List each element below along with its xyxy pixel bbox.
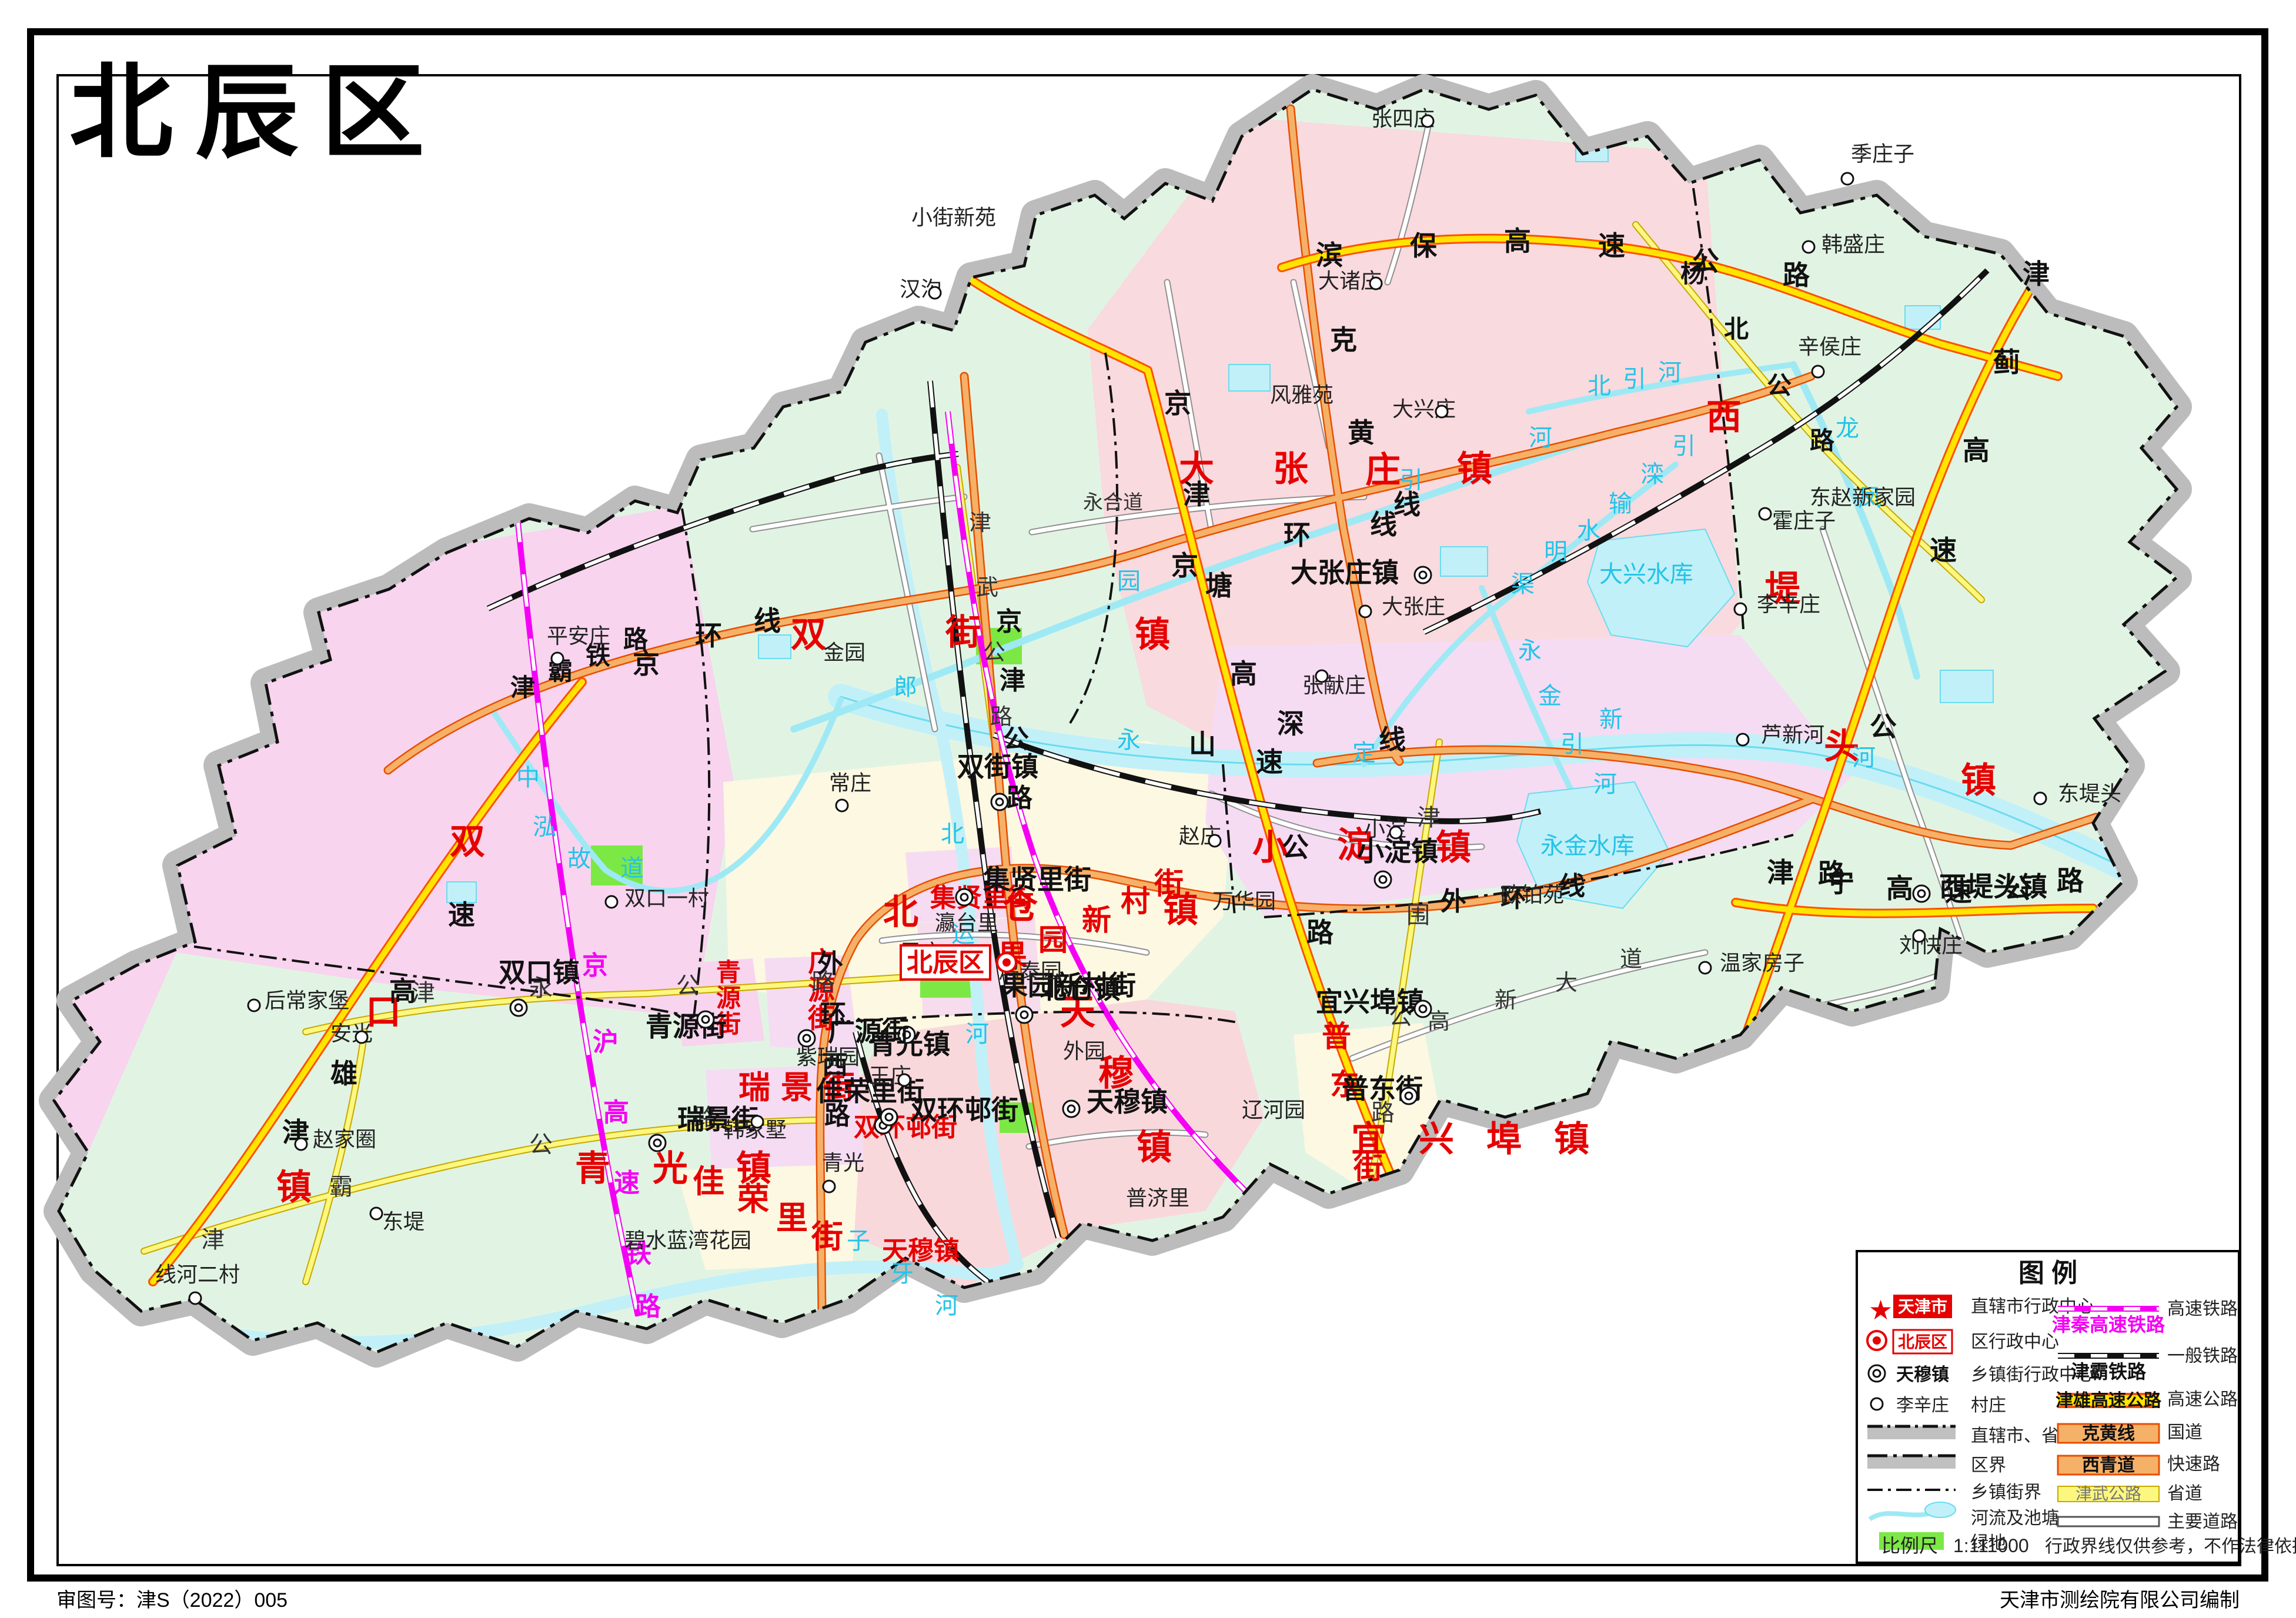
village-label-小街新苑: 小街新苑 <box>911 205 996 229</box>
legend-sample-津雄高速公路: 津雄高速公路 <box>2056 1391 2162 1410</box>
red-label-瑞景街: 景 <box>781 1070 813 1105</box>
legend-item-provincial-road: 津武公路省道 <box>2058 1484 2203 1503</box>
water-label-引滦输水明渠: 滦 <box>1640 462 1664 487</box>
map-title: 北辰区 <box>69 28 447 178</box>
village-label-平安庄: 平安庄 <box>547 624 610 648</box>
red-label-西堤头镇: 镇 <box>1961 761 1996 800</box>
road-label-津围公路: 津 <box>1417 805 1441 831</box>
town-center-icon-西堤头镇 <box>1913 885 1930 902</box>
town-center-icon-集贤里街 <box>956 889 972 905</box>
road-label-杨北公路: 杨 <box>1680 260 1705 288</box>
legend-title: 图 例 <box>2018 1259 2077 1288</box>
town-label-大张庄镇: 大张庄镇 <box>1291 557 1399 588</box>
water-label-永金引河: 引 <box>1560 731 1584 757</box>
town-center-icon-legend <box>1869 1365 1885 1382</box>
red-label-大张庄镇: 张 <box>1273 449 1308 489</box>
red-label-宜兴埠镇: 埠 <box>1486 1119 1522 1159</box>
water-label-永定新河: 永 <box>1117 727 1141 753</box>
village-icon-平安庄 <box>552 653 563 664</box>
district-center-icon <box>1867 1331 1886 1350</box>
town-center-icon-北仓镇 <box>1016 1007 1032 1023</box>
road-label-杨北公路: 北 <box>1724 315 1749 343</box>
water-label-永金引河: 金 <box>1538 683 1562 709</box>
water-label-郎园引河: 河 <box>1529 425 1552 451</box>
village-icon-张献庄 <box>1316 670 1328 682</box>
hsr-label-京沪高速铁路: 高 <box>603 1098 629 1127</box>
map-page: 大张庄镇双街镇北仓镇天穆镇天穆镇西堤头镇双口镇青光镇小淀镇宜兴埠镇果园新村街集贤… <box>0 0 2296 1618</box>
legend-sample-天穆镇: 天穆镇 <box>1896 1365 1949 1385</box>
village-label-芦新河: 芦新河 <box>1761 723 1824 747</box>
road-label-京津公路: 津 <box>1000 666 1025 695</box>
road-label-永合道: 永合道 <box>1083 492 1143 514</box>
road-label-津蓟高速公路: 速 <box>1930 535 1957 566</box>
village-label-东堤: 东堤 <box>382 1209 425 1233</box>
red-label-双口镇: 镇 <box>276 1168 312 1207</box>
red-label-果园新村街: 街 <box>1154 867 1184 900</box>
road-label-津雄高速: 速 <box>448 900 475 930</box>
village-label-大张庄: 大张庄 <box>1382 594 1445 619</box>
water-label-中泓故道: 道 <box>620 855 644 881</box>
village-icon-辛侯庄 <box>1812 366 1824 377</box>
village-label-季庄子: 季庄子 <box>1851 142 1914 166</box>
town-label-广源街: 广源街 <box>828 1016 909 1047</box>
village-label-常庄: 常庄 <box>829 771 871 795</box>
road-label-津宁高速公路: 路 <box>2057 865 2084 896</box>
star-city-icon: ★ <box>1869 1295 1893 1325</box>
red-label-青源街: 青 <box>716 958 741 986</box>
village-icon-双口一村 <box>606 896 617 908</box>
road-label-克黄线: 克 <box>1330 325 1357 355</box>
water-label-永定新河: 河 <box>1852 745 1876 771</box>
legend-desc-高速铁路: 高速铁路 <box>2167 1299 2238 1319</box>
road-label-京津塘高速公路: 塘 <box>1205 570 1232 601</box>
red-label-大张庄镇: 庄 <box>1365 450 1401 490</box>
road-label-津宁高速公路: 津 <box>1767 857 1794 888</box>
town-center-icon-宜兴埠镇 <box>1415 1001 1431 1017</box>
water-label-永定新河: 定 <box>1352 740 1376 766</box>
legend-scale-label: 比例尺 <box>1881 1535 1938 1556</box>
district-name: 北辰区 <box>907 948 984 977</box>
road-label-津霸公路: 津 <box>201 1227 225 1253</box>
legend: 图 例★天津市直辖市行政中心北辰区区行政中心天穆镇乡镇街行政中心李辛庄村庄直辖市… <box>1857 1251 2296 1563</box>
village-icon-李辛庄 <box>1734 603 1746 615</box>
road-label-津霸公路: 公 <box>529 1132 553 1158</box>
road-label-京津塘高速公路: 高 <box>1230 658 1257 689</box>
town-center-icon-普东街 <box>1401 1088 1417 1104</box>
red-label-双口镇: 双 <box>450 822 485 861</box>
town-label-青源街: 青源街 <box>646 1011 727 1042</box>
town-center-icon-双环邨街 <box>881 1109 897 1125</box>
village-icon-赵家圈 <box>295 1138 307 1150</box>
legend-sample-李辛庄: 李辛庄 <box>1896 1396 1949 1415</box>
town-center-icon-瑞景街 <box>649 1135 666 1151</box>
village-icon-王庄 <box>898 1074 910 1086</box>
village-label-碧水蓝湾花园: 碧水蓝湾花园 <box>624 1228 751 1252</box>
village-icon-后常家堡 <box>248 999 260 1011</box>
road-label-滨保高速公路: 路 <box>1783 260 1810 290</box>
water-label-北引河: 河 <box>1658 360 1682 386</box>
village-label-张献庄: 张献庄 <box>1302 673 1366 697</box>
village-label-温家房子: 温家房子 <box>1720 951 1804 975</box>
road-label-津宁高速公路: 高 <box>1886 873 1913 904</box>
town-center-icon-广源街 <box>798 1030 815 1047</box>
village-icon-线河二村 <box>189 1292 201 1304</box>
water-label-引滦输水明渠: 水 <box>1577 518 1600 544</box>
village-icon-张四庄 <box>1422 115 1433 127</box>
village-label-东赵新家园: 东赵新家园 <box>1810 485 1916 509</box>
legend-desc-河流及池塘: 河流及池塘 <box>1971 1509 2059 1528</box>
village-label-欧铂苑: 欧铂苑 <box>1500 882 1564 907</box>
legend-sample-津秦高速铁路: 津秦高速铁路 <box>2052 1314 2165 1335</box>
road-label-京环线-东: 环 <box>1284 520 1311 550</box>
road-label-津蓟高速公路: 蓟 <box>1993 347 2020 377</box>
village-icon-大兴庄 <box>1436 406 1448 417</box>
road-label-滨保高速公路: 保 <box>1410 230 1438 261</box>
water-label-中泓故道: 泓 <box>533 814 556 840</box>
road-label-京环线-西: 环 <box>695 620 722 651</box>
road-label-津宁高速公路: 宁 <box>1827 867 1854 898</box>
road-label-滨保高速公路: 滨 <box>1316 240 1343 270</box>
water-label-郎园引河: 园 <box>1117 569 1141 594</box>
hsr-label-京沪高速铁路: 路 <box>635 1292 661 1321</box>
village-icon-legend <box>1871 1398 1883 1410</box>
village-icon-东堤 <box>370 1208 382 1219</box>
legend-desc-乡镇街界: 乡镇街界 <box>1971 1483 2041 1502</box>
village-icon-大张庄 <box>1359 606 1371 617</box>
water-label-子牙河: 牙 <box>890 1261 914 1287</box>
road-label-杨北公路: 公 <box>1767 372 1792 399</box>
red-label-青光镇: 光 <box>653 1149 688 1188</box>
water-label-子牙河: 子 <box>847 1228 870 1254</box>
town-label-天穆镇: 天穆镇 <box>1087 1087 1168 1117</box>
village-label-后常家堡: 后常家堡 <box>265 988 349 1012</box>
legend-sample-天津市: 天津市 <box>1898 1297 1947 1316</box>
road-label-津永公路: 津 <box>412 980 435 1006</box>
road-label-京津公路: 公 <box>1003 725 1029 754</box>
approval-number: 审图号：津S（2022）005 <box>56 1584 288 1613</box>
road-label-京环线-东: 京 <box>1171 550 1198 581</box>
town-center-icon-小淀镇 <box>1375 871 1391 888</box>
water-label-北引河: 引 <box>1623 366 1646 392</box>
water-label-引滦输水明渠: 明 <box>1544 539 1568 565</box>
legend-sample-西青道: 西青道 <box>2082 1456 2135 1475</box>
village-label-辛侯庄: 辛侯庄 <box>1798 335 1861 359</box>
road-label-高新大道: 道 <box>1620 947 1642 972</box>
village-label-风雅苑: 风雅苑 <box>1270 383 1334 407</box>
red-label-宜兴埠镇: 兴 <box>1419 1119 1454 1159</box>
road-label-津霸铁路: 路 <box>623 626 649 653</box>
village-icon-汉沟 <box>929 287 941 299</box>
legend-sample-北辰区: 北辰区 <box>1898 1333 1947 1351</box>
village-label-青光: 青光 <box>822 1151 864 1175</box>
road-label-京津塘高速公路: 京 <box>1164 388 1191 419</box>
legend-item-national-road: 克黄线国道 <box>2058 1423 2203 1443</box>
road-label-高新大道: 大 <box>1555 971 1578 995</box>
hsr-label-京沪高速铁路: 沪 <box>593 1028 619 1057</box>
village-label-霍庄子: 霍庄子 <box>1772 509 1836 533</box>
red-label-普东街: 普 <box>1322 1020 1351 1053</box>
red-label-果园新村街: 村 <box>1121 885 1150 918</box>
village-icon-常庄 <box>836 800 848 811</box>
legend-desc-主要道路: 主要道路 <box>2167 1512 2238 1532</box>
water-label-永金水库: 永金水库 <box>1540 833 1635 859</box>
road-label-津蓟高速公路: 高 <box>1963 435 1990 466</box>
beichen-district-map: 大张庄镇双街镇北仓镇天穆镇天穆镇西堤头镇双口镇青光镇小淀镇宜兴埠镇果园新村街集贤… <box>0 0 2296 1618</box>
legend-desc-高速公路: 高速公路 <box>2167 1390 2238 1409</box>
town-label-双口镇: 双口镇 <box>499 957 580 988</box>
legend-desc-区行政中心: 区行政中心 <box>1971 1332 2059 1352</box>
water-label-永定新河: 新 <box>1599 707 1623 733</box>
town-label-双环邨街: 双环邨街 <box>910 1095 1018 1125</box>
red-label-佳荣里街: 街 <box>811 1219 843 1255</box>
town-center-icon-双口镇 <box>510 999 527 1016</box>
village-label-瀛台里: 瀛台里 <box>935 911 998 935</box>
water-label-引滦输水明渠: 引 <box>1672 433 1696 459</box>
village-label-万华园: 万华园 <box>1212 889 1276 913</box>
road-label-山深线: 深 <box>1277 708 1304 739</box>
water-label-引滦输水明渠: 输 <box>1609 491 1632 517</box>
town-label-双街镇: 双街镇 <box>957 751 1038 782</box>
red-label-青源街: 源 <box>716 984 741 1012</box>
water-label-北运河: 河 <box>965 1021 989 1047</box>
red-label-果园新村街: 园 <box>1038 924 1068 957</box>
water-label-郎园引河: 郎 <box>894 674 917 700</box>
legend-item-expressway: 津雄高速公路高速公路 <box>2056 1390 2238 1410</box>
legend-desc-国道: 国道 <box>2167 1423 2203 1442</box>
legend-disclaimer: 行政界线仅供参考，不作法律依据 <box>2045 1537 2296 1556</box>
legend-desc-村庄: 村庄 <box>1971 1396 2006 1415</box>
red-label-双街镇: 街 <box>945 613 981 652</box>
road-label-京津公路: 京 <box>996 607 1022 636</box>
red-label-青光镇: 青 <box>575 1149 610 1188</box>
village-label-外园: 外园 <box>1063 1039 1105 1063</box>
red-label-宜兴埠镇: 镇 <box>1554 1119 1589 1159</box>
red-label-普东街: 街 <box>1353 1152 1383 1185</box>
red-label-西堤头镇: 西 <box>1706 397 1742 437</box>
road-label-外环西路: 外 <box>817 950 843 978</box>
road-label-山深线: 线 <box>1379 724 1406 755</box>
red-label-瑞景街: 瑞 <box>738 1070 770 1105</box>
red-label-天穆镇: 镇 <box>1137 1128 1172 1167</box>
publisher: 天津市测绘院有限公司编制 <box>2000 1584 2240 1613</box>
legend-desc-省道: 省道 <box>2167 1484 2203 1503</box>
village-icon-季庄子 <box>1842 173 1853 185</box>
water-label-郎园引河: 引 <box>1399 467 1423 493</box>
legend-sample-克黄线: 克黄线 <box>2082 1424 2135 1443</box>
village-icon-赵庄 <box>1209 835 1221 847</box>
village-icon-韩盛庄 <box>1803 241 1814 253</box>
road-label-滨保高速公路: 高 <box>1504 226 1531 256</box>
water-label-大兴水库: 大兴水库 <box>1599 561 1693 587</box>
water-label-引滦输水明渠: 渠 <box>1511 571 1535 597</box>
road-label-京津塘高速公路: 路 <box>1306 917 1334 948</box>
road-label-京津塘高速公路: 速 <box>1256 747 1283 777</box>
legend-sample-津霸铁路: 津霸铁路 <box>2071 1361 2147 1382</box>
road-label-津雄高速: 雄 <box>330 1058 357 1089</box>
road-label-津蓟高速公路: 公 <box>1870 711 1897 742</box>
water-label-龙凤河: 龙 <box>1836 416 1859 442</box>
village-icon-东堤头 <box>2034 793 2046 804</box>
water-label-北运河: 北 <box>941 821 964 847</box>
road-label-京津塘高速公路: 公 <box>1282 832 1309 863</box>
legend-desc-区界: 区界 <box>1971 1456 2006 1475</box>
village-icon-韩家墅 <box>751 1116 763 1128</box>
town-label-宜兴埠镇: 宜兴埠镇 <box>1316 987 1424 1017</box>
road-label-高新大道: 新 <box>1495 988 1517 1013</box>
road-label-克黄线: 黄 <box>1348 417 1375 448</box>
village-label-辽河园: 辽河园 <box>1242 1098 1305 1122</box>
village-icon-霍庄子 <box>1759 508 1771 520</box>
road-label-津武公路: 公 <box>983 640 1005 665</box>
water-label-永金引河: 永 <box>1518 638 1542 664</box>
village-label-金园: 金园 <box>823 640 865 664</box>
water-label-子牙河: 河 <box>935 1293 958 1319</box>
village-icon-小淀 <box>1390 827 1402 838</box>
village-label-普济里: 普济里 <box>1126 1186 1189 1210</box>
legend-desc-快速路: 快速路 <box>2167 1455 2220 1474</box>
road-label-京环线-西: 线 <box>754 606 781 636</box>
town-label-集贤里街: 集贤里街 <box>982 864 1091 895</box>
village-label-赵家圈: 赵家圈 <box>313 1127 376 1151</box>
village-label-线河二村: 线河二村 <box>155 1262 240 1286</box>
red-label-佳荣里街: 荣 <box>737 1182 769 1217</box>
road-label-外环线: 外 <box>1441 887 1466 916</box>
legend-item-fast-road: 西青道快速路 <box>2058 1455 2220 1475</box>
town-center-icon-大张庄镇 <box>1415 567 1431 583</box>
red-label-果园新村街: 新 <box>1082 904 1111 937</box>
hsr-label-京沪高速铁路: 京 <box>582 951 608 980</box>
road-label-杨北公路: 路 <box>1810 427 1835 454</box>
village-icon-芦新河 <box>1737 734 1749 746</box>
road-label-津霸铁路: 津 <box>510 674 535 701</box>
legend-item-town-center: 天穆镇乡镇街行政中心 <box>1869 1365 2094 1385</box>
road-label-津围公路: 围 <box>1406 902 1430 928</box>
road-label-津永公路: 公 <box>676 973 700 999</box>
town-label-西堤头镇: 西堤头镇 <box>1939 871 2047 902</box>
village-label-刘快庄: 刘快庄 <box>1899 933 1963 957</box>
road-label-滨保高速公路: 速 <box>1598 230 1625 261</box>
water-label-北引河: 北 <box>1588 373 1611 399</box>
district-center-icon <box>997 953 1016 972</box>
road-label-山深线: 山 <box>1189 729 1216 760</box>
road-label-高新大道: 高 <box>1428 1009 1450 1034</box>
water-label-中泓故道: 中 <box>516 765 540 791</box>
red-label-北仓镇: 北 <box>883 892 918 932</box>
village-icon-大诸庄 <box>1370 278 1382 289</box>
legend-scale-value: 1:111000 <box>1953 1535 2029 1556</box>
village-icon-刘快庄 <box>1913 930 1925 942</box>
village-label-双口一村: 双口一村 <box>624 886 709 910</box>
red-label-佳荣里街: 佳 <box>693 1164 724 1199</box>
red-label-小淀镇: 镇 <box>1436 828 1471 867</box>
water-label-中泓故道: 故 <box>567 846 591 872</box>
village-icon-温家房子 <box>1699 962 1711 974</box>
water-label-永金引河: 河 <box>1593 771 1617 797</box>
red-label-大张庄镇: 镇 <box>1457 449 1492 489</box>
hsr-label-京沪高速铁路: 速 <box>614 1169 640 1198</box>
road-label-津武公路: 武 <box>976 576 998 600</box>
red-label-双街镇: 镇 <box>1135 615 1170 654</box>
road-label-京津公路: 路 <box>1007 784 1033 813</box>
town-center-icon-天穆镇 <box>1063 1101 1080 1117</box>
village-label-紫瑞园: 紫瑞园 <box>796 1045 860 1069</box>
town-center-icon-青源街 <box>697 1011 714 1028</box>
village-label-李辛庄: 李辛庄 <box>1757 592 1820 616</box>
red-label-佳荣里街: 里 <box>776 1201 808 1236</box>
red-label-双街镇: 双 <box>791 615 826 654</box>
town-center-icon-双街镇 <box>991 794 1008 810</box>
road-label-京环线-东: 线 <box>1393 489 1421 520</box>
village-label-韩盛庄: 韩盛庄 <box>1822 232 1885 256</box>
village-icon-安光 <box>356 1031 367 1043</box>
road-label-津武公路: 津 <box>969 511 991 536</box>
village-icon-青光 <box>823 1181 835 1192</box>
road-label-津蓟高速公路: 津 <box>2023 259 2050 289</box>
legend-sample-津武公路: 津武公路 <box>2076 1485 2141 1503</box>
village-label-东堤头: 东堤头 <box>2058 781 2121 805</box>
legend-desc-一般铁路: 一般铁路 <box>2167 1346 2238 1366</box>
road-label-津霸公路: 霸 <box>329 1174 353 1200</box>
road-label-京津塘高速公路: 津 <box>1183 479 1210 510</box>
